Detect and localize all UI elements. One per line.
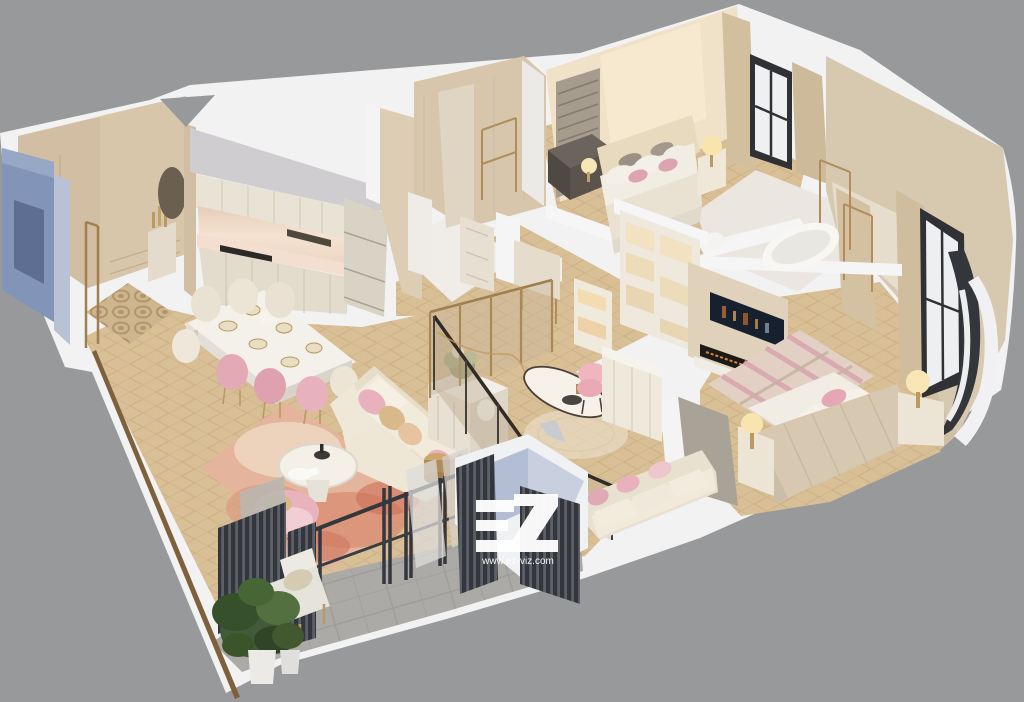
svg-text:www.ez-viz.com: www.ez-viz.com: [481, 556, 554, 567]
